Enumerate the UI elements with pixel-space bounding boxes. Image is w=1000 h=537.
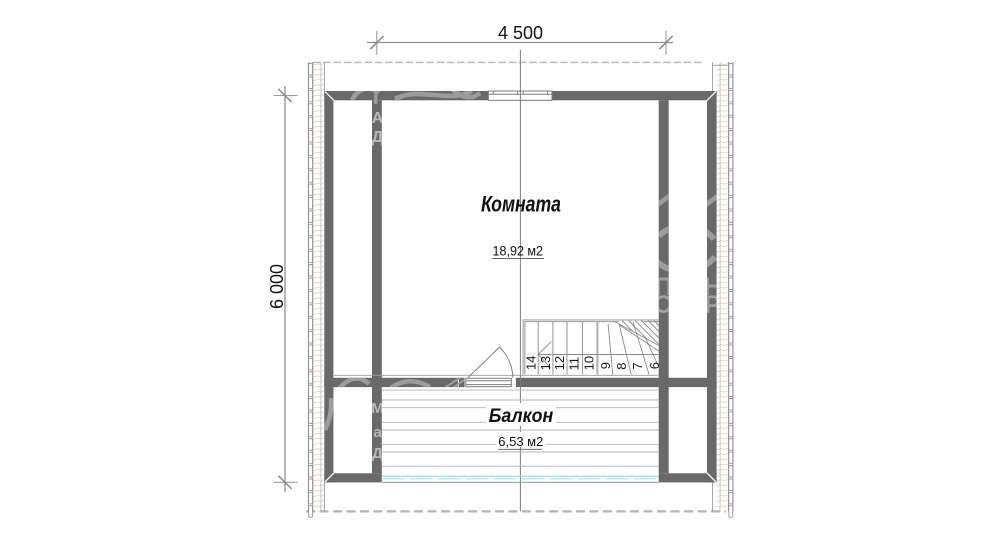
svg-text:а: а (373, 424, 382, 441)
svg-text:7: 7 (630, 363, 645, 370)
svg-text:Балкон: Балкон (489, 406, 554, 427)
svg-text:6 000: 6 000 (267, 264, 287, 309)
svg-text:18,92 м2: 18,92 м2 (493, 243, 544, 259)
svg-text:13: 13 (538, 356, 553, 370)
svg-text:8: 8 (614, 363, 629, 370)
svg-text:12: 12 (552, 356, 567, 370)
svg-text:14: 14 (523, 356, 538, 370)
svg-text:Д: Д (372, 445, 383, 462)
svg-text:10: 10 (582, 356, 597, 370)
svg-text:11: 11 (567, 357, 582, 371)
svg-text:6: 6 (647, 362, 662, 369)
svg-text:6,53 м2: 6,53 м2 (498, 434, 543, 449)
svg-text:9: 9 (598, 362, 613, 369)
svg-text:Комната: Комната (481, 192, 561, 217)
svg-text:4 500: 4 500 (498, 23, 543, 43)
